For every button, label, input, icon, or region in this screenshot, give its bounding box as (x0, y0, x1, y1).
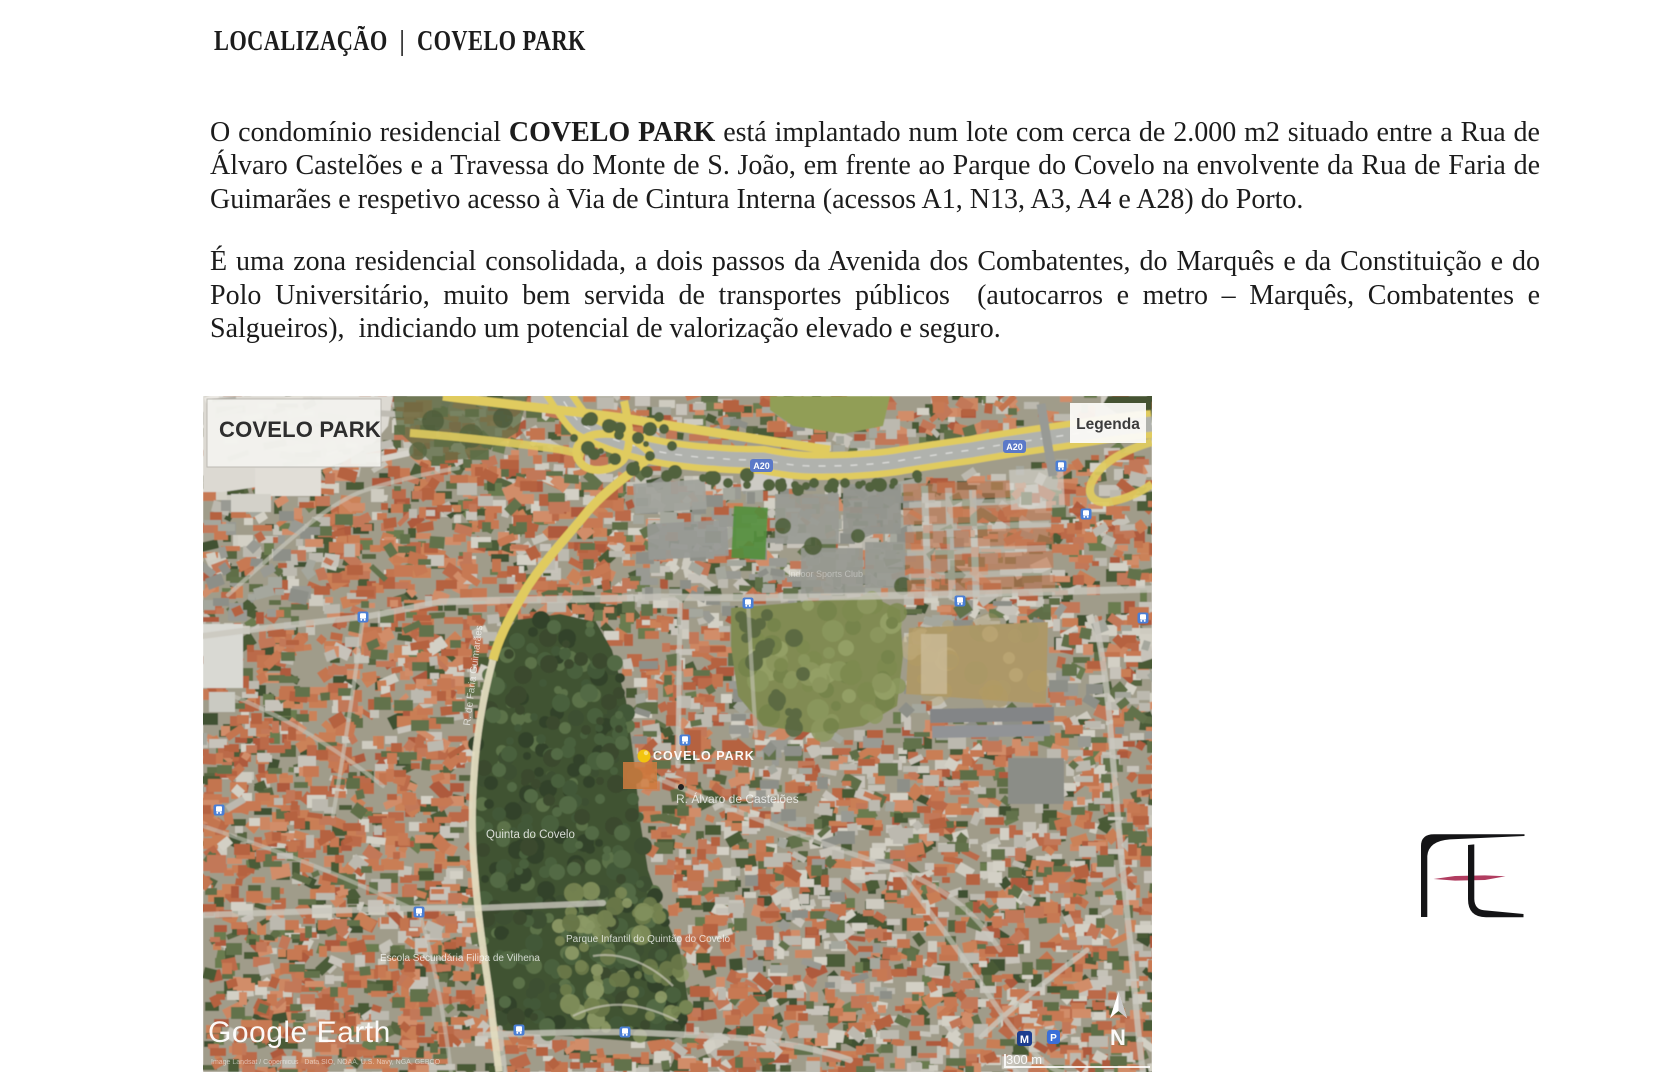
svg-text:Quinta do Covelo: Quinta do Covelo (486, 829, 575, 841)
svg-text:Indoor Sports Club: Indoor Sports Club (788, 569, 863, 579)
svg-text:Legenda: Legenda (1076, 416, 1140, 433)
svg-text:COVELO PARK: COVELO PARK (219, 417, 381, 442)
svg-text:P: P (1050, 1033, 1057, 1044)
svg-text:Image Landsat / Copernicus D: Image Landsat / Copernicus Data SIO, NOA… (211, 1059, 441, 1066)
svg-text:N: N (1110, 1025, 1126, 1050)
svg-text:A20: A20 (753, 461, 770, 471)
svg-text:R. Álvaro de Castelões: R. Álvaro de Castelões (676, 791, 799, 806)
svg-text:Escola Secundária Filipa de Vi: Escola Secundária Filipa de Vilhena (380, 953, 540, 964)
svg-text:300 m: 300 m (1006, 1052, 1042, 1067)
svg-text:M: M (1020, 1034, 1029, 1046)
svg-text:Google Earth: Google Earth (208, 1016, 391, 1049)
svg-text:COVELO PARK: COVELO PARK (653, 749, 755, 763)
svg-text:Parque Infantil do Quintão do: Parque Infantil do Quintão do Covelo (566, 934, 730, 945)
svg-text:A20: A20 (1006, 442, 1023, 452)
